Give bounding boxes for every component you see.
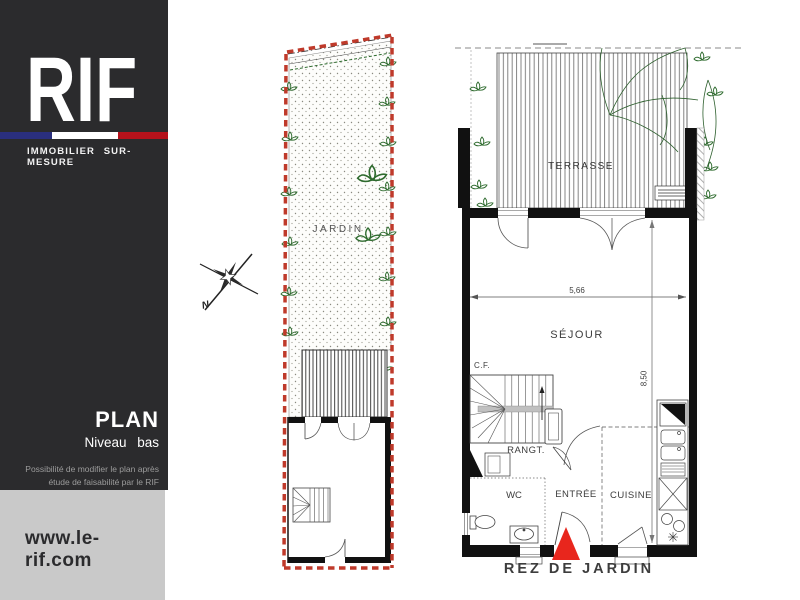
website-footer: www.le-rif.com xyxy=(0,490,165,600)
room-label-entree: ENTRÉE xyxy=(546,489,606,500)
brand-tagline: IMMOBILIER SUR-MESURE xyxy=(27,146,168,168)
plan-note-line1: Possibilité de modifier le plan après xyxy=(25,463,159,476)
room-label-wc: WC xyxy=(499,490,529,501)
terrace-equipment-box xyxy=(655,186,689,200)
wc-fixtures xyxy=(470,516,538,544)
electrical-panel xyxy=(545,409,562,444)
water-heater xyxy=(485,453,510,476)
site-terrace-deck xyxy=(302,350,387,417)
duct-triangle-left xyxy=(470,450,483,477)
terrace-deck xyxy=(497,53,687,208)
room-label-cuisine: CUISINE xyxy=(601,490,661,501)
garden-label: JARDIN xyxy=(308,224,368,235)
site-staircase xyxy=(293,488,330,522)
room-label-sejour: SÉJOUR xyxy=(532,329,622,341)
site-plan xyxy=(280,30,400,575)
kitchen-counter xyxy=(657,400,688,545)
website-url: www.le-rif.com xyxy=(25,528,165,572)
staircase xyxy=(470,375,553,443)
flag-red-segment xyxy=(118,132,168,139)
fridge-snowflake xyxy=(668,532,678,542)
flag-blue-segment xyxy=(0,132,52,139)
sejour-top-wall xyxy=(462,208,697,250)
brochure-page: RIF IMMOBILIER SUR-MESURE PLAN Niveau ba… xyxy=(0,0,800,600)
dimension-width-value: 5,66 xyxy=(557,286,597,295)
sejour-door-arc xyxy=(564,426,600,465)
plan-subtitle: Niveau bas xyxy=(25,435,159,450)
brand-sidebar: RIF IMMOBILIER SUR-MESURE PLAN Niveau ba… xyxy=(0,0,168,490)
plan-note-line2: étude de faisabilité par le RIF xyxy=(25,476,159,489)
room-label-rangt: RANGT. xyxy=(496,445,556,456)
entrance-marker-triangle xyxy=(552,527,580,560)
plan-title: PLAN xyxy=(25,407,159,433)
dimension-height-value: 8,50 xyxy=(639,371,648,387)
room-label-terrasse: TERRASSE xyxy=(538,161,624,172)
annotation-cf: C.F. xyxy=(474,361,490,370)
site-house-footprint xyxy=(288,417,391,563)
compass-rose xyxy=(190,242,270,322)
plan-note: Possibilité de modifier le plan après ét… xyxy=(25,463,159,489)
french-flag-bar xyxy=(0,132,168,139)
plan-title-block: PLAN Niveau bas Possibilité de modifier … xyxy=(25,407,159,489)
brand-logo: RIF xyxy=(26,44,137,136)
level-label: REZ DE JARDIN xyxy=(494,561,664,577)
dimension-width-line xyxy=(470,295,686,300)
flag-white-segment xyxy=(52,132,118,139)
